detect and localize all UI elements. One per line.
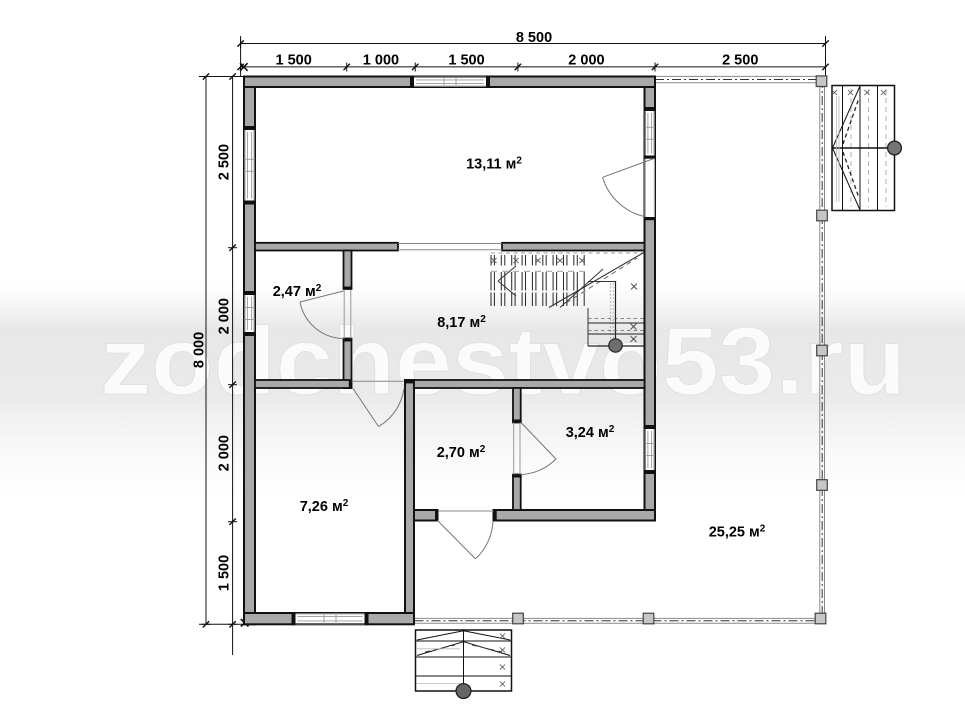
svg-text:2 500: 2 500	[722, 53, 758, 69]
svg-text:3,24 м2: 3,24 м2	[566, 424, 615, 441]
svg-text:7,26 м2: 7,26 м2	[300, 498, 349, 515]
svg-text:1 500: 1 500	[448, 53, 484, 69]
svg-text:8 500: 8 500	[516, 30, 552, 46]
svg-text:2 500: 2 500	[217, 144, 233, 180]
svg-text:2 000: 2 000	[568, 53, 604, 69]
svg-text:2,47 м2: 2,47 м2	[273, 283, 322, 300]
svg-text:8,17 м2: 8,17 м2	[437, 314, 486, 331]
svg-text:1 500: 1 500	[276, 53, 312, 69]
svg-text:2 000: 2 000	[217, 298, 233, 334]
svg-text:8 000: 8 000	[192, 332, 208, 368]
svg-text:13,11 м2: 13,11 м2	[466, 156, 522, 173]
svg-text:25,25 м2: 25,25 м2	[709, 524, 766, 541]
svg-text:2 000: 2 000	[217, 435, 233, 471]
svg-text:2,70 м2: 2,70 м2	[437, 444, 486, 461]
svg-text:1 500: 1 500	[217, 555, 233, 591]
svg-text:1 000: 1 000	[363, 53, 399, 69]
